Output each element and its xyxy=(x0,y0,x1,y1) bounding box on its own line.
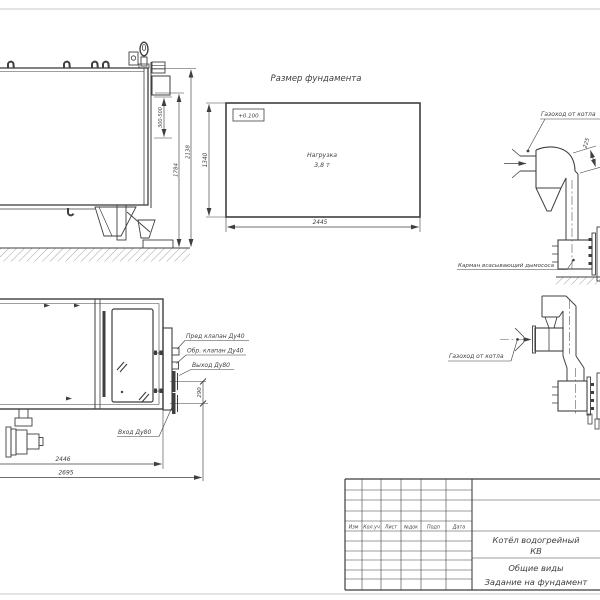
product-title-line1: Котёл водогрейный xyxy=(492,535,580,545)
boiler-base xyxy=(0,205,173,248)
title-block: Изм Кол.уч Лист №док Подп Дата Котёл вод… xyxy=(345,479,600,590)
foundation-plan-view: Размер фундамента +0.100 Нагрузка 3,8 т … xyxy=(203,74,420,232)
svg-text:№док: №док xyxy=(403,525,418,531)
load-value: 3,8 т xyxy=(314,162,330,169)
boiler-side-view: 300-500 1784 2138 xyxy=(0,42,196,261)
svg-text:Газоход от котла: Газоход от котла xyxy=(541,111,596,118)
svg-text:Пред клапан Ду40: Пред клапан Ду40 xyxy=(186,333,245,340)
svg-text:225: 225 xyxy=(583,137,592,149)
burner xyxy=(6,409,43,457)
svg-text:Газоход от котла: Газоход от котла xyxy=(449,353,504,360)
flue-assembly-lower: Газоход от котла xyxy=(448,296,600,429)
svg-text:2446: 2446 xyxy=(55,456,70,463)
svg-text:Кол.уч: Кол.уч xyxy=(363,525,380,531)
plan-view-dimensions: 2446 2695 xyxy=(0,410,202,478)
foundation-dimensions: 1340 2445 xyxy=(203,103,420,232)
svg-text:Вход Ду80: Вход Ду80 xyxy=(118,429,151,436)
flue-label-lower: Газоход от котла xyxy=(448,341,517,361)
flue-assembly-upper: Газоход от котла xyxy=(457,111,600,285)
drawing-canvas: 300-500 1784 2138 Размер фундамента +0.1… xyxy=(0,0,600,600)
pocket-label: Карман всасывающий дымососа xyxy=(457,259,575,270)
check-valve-stub xyxy=(172,362,179,369)
level-mark-value: +0.100 xyxy=(238,114,259,120)
lifting-eye xyxy=(129,42,149,68)
title-block-headers: Изм Кол.уч Лист №док Подп Дата xyxy=(349,525,466,531)
boiler-plan-view: Пред клапан Ду40 Обр. клапан Ду40 Выход … xyxy=(0,299,249,481)
dim-flue-gap: 300-500 xyxy=(158,107,164,128)
callout-outlet: Выход Ду80 xyxy=(179,362,234,376)
svg-text:Изм: Изм xyxy=(349,525,359,531)
product-title-line2: КВ xyxy=(530,546,542,556)
ground-hatch xyxy=(0,248,190,262)
doc-type-line1: Общие виды xyxy=(508,563,564,573)
dim-foundation-width: 2445 xyxy=(313,220,328,226)
gas-outlet-stub xyxy=(152,62,170,95)
svg-text:Подп: Подп xyxy=(427,525,440,531)
level-mark: +0.100 xyxy=(233,109,264,121)
dim-total-height: 2138 xyxy=(186,145,192,159)
title-block-titles: Котёл водогрейный КВ Общие виды Задание … xyxy=(485,535,589,587)
doc-type-line2: Задание на фундамент xyxy=(485,577,589,587)
dim-body-height: 1784 xyxy=(174,163,180,177)
flue-duct-vertical xyxy=(566,174,578,270)
lifting-hooks xyxy=(8,62,109,68)
svg-text:2695: 2695 xyxy=(58,470,73,477)
dim-290: 290 xyxy=(197,379,206,482)
svg-text:Обр. клапан Ду40: Обр. клапан Ду40 xyxy=(187,348,244,355)
lower-duct-run xyxy=(552,356,600,429)
sheet-frame xyxy=(0,9,600,594)
foundation-title: Размер фундамента xyxy=(271,74,362,84)
safety-valve-stub xyxy=(172,348,179,355)
suction-pocket xyxy=(552,227,600,285)
dim-225: 225 xyxy=(573,137,600,173)
svg-text:Выход Ду80: Выход Ду80 xyxy=(192,362,230,369)
svg-text:Карман всасывающий дымососа: Карман всасывающий дымососа xyxy=(458,263,555,269)
elbow-duct xyxy=(542,296,576,356)
load-label: Нагрузка xyxy=(307,152,337,159)
svg-text:290: 290 xyxy=(197,387,203,398)
drawing-sheet: 300-500 1784 2138 Размер фундамента +0.1… xyxy=(0,0,600,600)
svg-text:Дата: Дата xyxy=(452,525,465,531)
dim-foundation-height: 1340 xyxy=(203,152,209,167)
inlet-duct-box xyxy=(500,326,563,353)
svg-text:Лист: Лист xyxy=(384,525,397,531)
